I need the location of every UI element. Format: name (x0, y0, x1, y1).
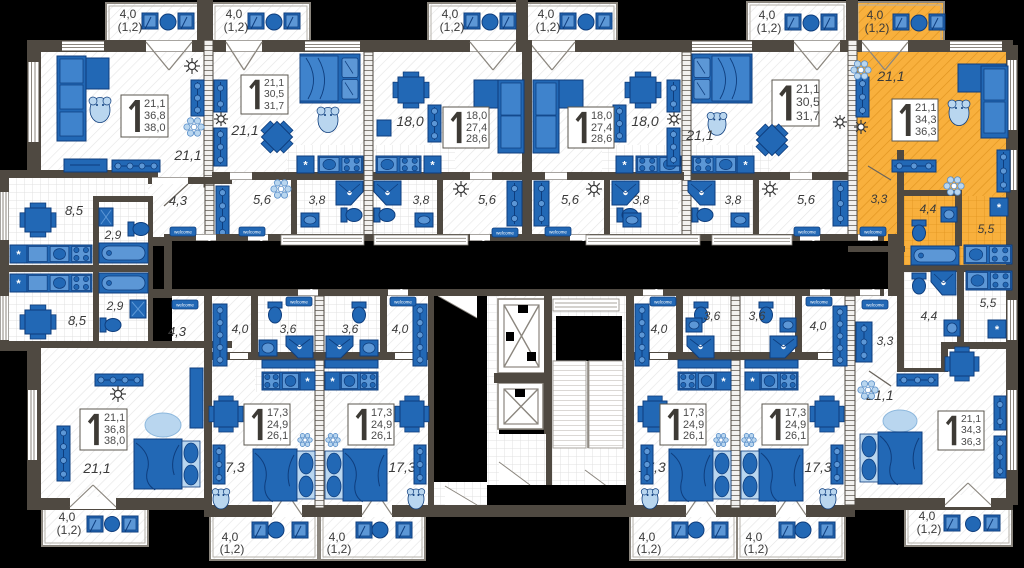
svg-text:21,1: 21,1 (876, 68, 904, 84)
svg-text:26,1: 26,1 (371, 430, 392, 442)
svg-text:3,6: 3,6 (704, 309, 721, 323)
svg-text:28,6: 28,6 (466, 133, 487, 145)
svg-text:welcome: welcome (243, 230, 261, 235)
svg-text:(1,2): (1,2) (757, 21, 782, 35)
svg-text:18,0: 18,0 (631, 113, 658, 129)
svg-text:34,3: 34,3 (961, 425, 981, 436)
svg-text:5,6: 5,6 (797, 192, 816, 207)
svg-text:4,3: 4,3 (168, 324, 187, 339)
svg-text:*: * (721, 376, 726, 388)
svg-text:26,1: 26,1 (785, 430, 806, 442)
svg-text:21,1: 21,1 (104, 412, 125, 424)
svg-text:17,3: 17,3 (388, 459, 415, 475)
svg-text:30,5: 30,5 (264, 89, 284, 100)
svg-text:welcome: welcome (290, 300, 308, 305)
svg-text:(1,2): (1,2) (327, 542, 352, 556)
svg-text:4,0: 4,0 (232, 322, 249, 336)
svg-text:*: * (16, 278, 21, 290)
svg-text:3,8: 3,8 (309, 193, 326, 207)
svg-text:*: * (743, 160, 748, 172)
svg-text:34,3: 34,3 (915, 114, 937, 126)
svg-text:5,6: 5,6 (561, 192, 580, 207)
svg-text:(1,2): (1,2) (57, 523, 82, 537)
svg-text:5,6: 5,6 (478, 192, 497, 207)
svg-text:4,0: 4,0 (120, 7, 137, 21)
svg-text:(1,2): (1,2) (440, 20, 465, 34)
svg-text:2,9: 2,9 (104, 228, 122, 242)
svg-text:21,1: 21,1 (82, 460, 110, 476)
svg-text:8,5: 8,5 (65, 203, 84, 218)
svg-text:4,0: 4,0 (59, 510, 76, 524)
svg-text:31,7: 31,7 (796, 109, 820, 123)
svg-text:welcome: welcome (174, 230, 192, 235)
svg-text:28,6: 28,6 (591, 133, 612, 145)
svg-text:welcome: welcome (654, 300, 672, 305)
svg-text:(1,2): (1,2) (744, 542, 769, 556)
svg-text:38,0: 38,0 (104, 435, 125, 447)
svg-text:welcome: welcome (866, 303, 884, 308)
svg-text:17,3: 17,3 (683, 407, 704, 419)
svg-text:4,0: 4,0 (919, 509, 936, 523)
svg-text:5,5: 5,5 (980, 296, 997, 310)
svg-text:4,0: 4,0 (810, 319, 827, 333)
svg-text:welcome: welcome (864, 230, 882, 235)
svg-text:5,6: 5,6 (253, 192, 272, 207)
svg-text:welcome: welcome (394, 300, 412, 305)
svg-text:21,1: 21,1 (144, 98, 166, 110)
svg-text:3,6: 3,6 (749, 309, 766, 323)
svg-text:21,1: 21,1 (230, 122, 258, 138)
svg-text:3,3: 3,3 (871, 192, 888, 206)
svg-text:2,9: 2,9 (106, 299, 124, 313)
svg-text:18,0: 18,0 (591, 110, 612, 122)
svg-text:(1,2): (1,2) (865, 21, 890, 35)
svg-text:21,1: 21,1 (173, 147, 201, 163)
svg-text:4,4: 4,4 (920, 202, 937, 216)
svg-text:17,3: 17,3 (785, 407, 806, 419)
svg-text:welcome: welcome (798, 230, 816, 235)
svg-text:4,0: 4,0 (651, 322, 668, 336)
svg-text:*: * (750, 376, 755, 388)
svg-text:5,5: 5,5 (978, 222, 995, 236)
svg-text:*: * (330, 376, 335, 388)
svg-text:21,1: 21,1 (685, 127, 713, 143)
svg-text:(1,2): (1,2) (536, 20, 561, 34)
svg-text:*: * (997, 202, 1002, 214)
svg-text:*: * (303, 160, 308, 172)
svg-text:8,5: 8,5 (68, 313, 87, 328)
svg-text:4,3: 4,3 (169, 193, 188, 208)
svg-text:18,0: 18,0 (396, 113, 423, 129)
svg-text:4,0: 4,0 (392, 322, 409, 336)
svg-text:welcome: welcome (496, 231, 514, 236)
svg-text:*: * (430, 160, 435, 172)
svg-text:26,1: 26,1 (683, 430, 704, 442)
svg-text:3,6: 3,6 (342, 322, 359, 336)
svg-text:21,1: 21,1 (915, 102, 937, 114)
svg-text:(1,2): (1,2) (224, 20, 249, 34)
svg-text:welcome: welcome (176, 303, 194, 308)
svg-text:17,3: 17,3 (804, 459, 831, 475)
svg-text:(1,2): (1,2) (220, 542, 245, 556)
svg-text:4,0: 4,0 (759, 8, 776, 22)
svg-text:3,8: 3,8 (413, 193, 430, 207)
svg-text:26,1: 26,1 (267, 430, 288, 442)
svg-text:*: * (305, 376, 310, 388)
svg-text:(1,2): (1,2) (917, 522, 942, 536)
svg-text:30,5: 30,5 (796, 95, 820, 109)
svg-text:3,8: 3,8 (725, 193, 742, 207)
svg-text:*: * (622, 160, 627, 172)
svg-text:18,0: 18,0 (466, 110, 487, 122)
svg-text:36,3: 36,3 (961, 437, 981, 448)
svg-text:4,0: 4,0 (538, 7, 555, 21)
svg-text:38,0: 38,0 (144, 122, 166, 134)
svg-text:*: * (16, 249, 21, 261)
svg-text:*: * (995, 324, 1000, 336)
svg-text:(1,2): (1,2) (118, 20, 143, 34)
svg-text:4,0: 4,0 (226, 7, 243, 21)
svg-text:(1,2): (1,2) (637, 542, 662, 556)
svg-text:17,3: 17,3 (371, 407, 392, 419)
svg-text:36,8: 36,8 (144, 110, 166, 122)
svg-text:21,1: 21,1 (264, 78, 284, 89)
svg-text:3,8: 3,8 (633, 193, 650, 207)
svg-text:welcome: welcome (810, 300, 828, 305)
svg-text:3,6: 3,6 (280, 322, 297, 336)
svg-text:3,3: 3,3 (877, 334, 894, 348)
svg-text:17,3: 17,3 (267, 407, 288, 419)
svg-text:welcome: welcome (549, 230, 567, 235)
svg-text:31,7: 31,7 (264, 101, 284, 112)
svg-text:4,0: 4,0 (442, 7, 459, 21)
svg-text:36,3: 36,3 (915, 126, 937, 138)
svg-text:21,1: 21,1 (961, 414, 981, 425)
svg-text:21,1: 21,1 (796, 82, 820, 96)
svg-text:4,4: 4,4 (921, 309, 938, 323)
svg-text:4,0: 4,0 (867, 8, 884, 22)
